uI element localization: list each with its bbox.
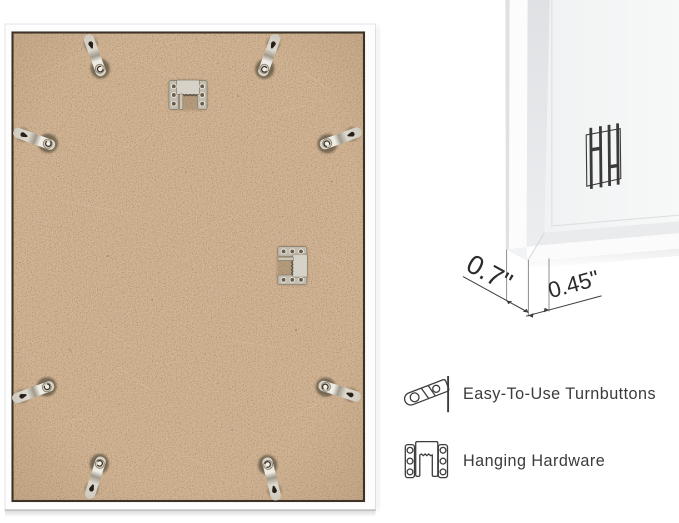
svg-text:Hanging Hardware: Hanging Hardware (463, 452, 605, 470)
svg-text:Easy-To-Use Turnbuttons: Easy-To-Use Turnbuttons (463, 385, 656, 403)
